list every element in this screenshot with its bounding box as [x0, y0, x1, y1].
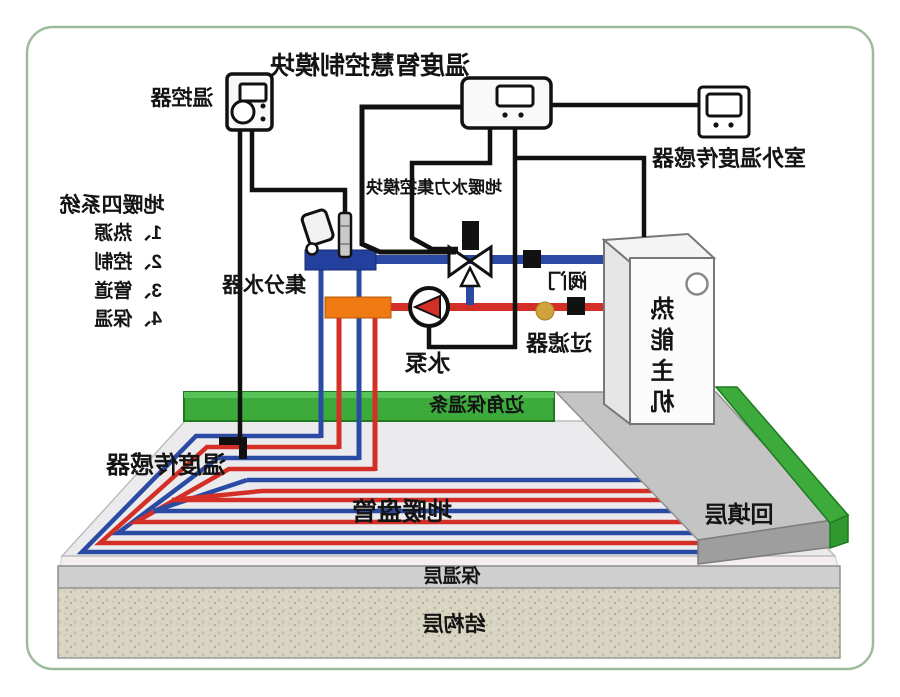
- floor-heating-diagram: 温度智慧控制模块 温控器 室外温度传感器 地暖水力集控模块 地暖四系统 1、热源…: [0, 0, 900, 697]
- label-manifold: 集分水器: [214, 274, 314, 298]
- title-smart-control-module: 温度智慧控制模块: [262, 52, 478, 81]
- label-floor-sensor: 温度传感器: [98, 452, 234, 480]
- valve-square-return: [523, 250, 541, 268]
- label-coil: 地暖盘管: [340, 498, 464, 527]
- control-module: [462, 78, 551, 128]
- outdoor-sensor: [699, 87, 749, 137]
- supply-manifold: [325, 297, 391, 318]
- filter: [536, 302, 554, 320]
- label-thermostat: 温控器: [137, 87, 227, 111]
- legend-title: 地暖四系统: [52, 194, 172, 218]
- label-structure-layer: 结构层: [414, 613, 494, 637]
- label-valve: 阀门: [540, 271, 595, 294]
- legend-item-insulation: 4、保温: [88, 309, 162, 331]
- pipe-sensor: [339, 213, 351, 257]
- legend-item-piping: 3、管道: [88, 281, 162, 303]
- pump: [410, 288, 448, 326]
- valve-square-supply: [567, 297, 585, 315]
- legend-item-heat-source: 1、热源: [88, 223, 162, 245]
- thermostat: [227, 74, 272, 130]
- label-pump: 水泵: [395, 350, 460, 376]
- label-filter: 过滤器: [515, 331, 603, 356]
- label-hydraulic-module: 地暖水力集控模块: [363, 178, 505, 198]
- legend-item-control: 2、控制: [88, 252, 162, 274]
- diagram-graphics: [0, 0, 900, 697]
- label-edge-insulation: 边角保温条: [420, 395, 533, 417]
- label-outdoor-sensor: 室外温度传感器: [648, 146, 810, 171]
- label-insulation-layer: 保温层: [414, 566, 490, 588]
- label-backfill-layer: 回填层: [700, 501, 778, 527]
- label-heat-unit: 热能主机: [654, 288, 684, 428]
